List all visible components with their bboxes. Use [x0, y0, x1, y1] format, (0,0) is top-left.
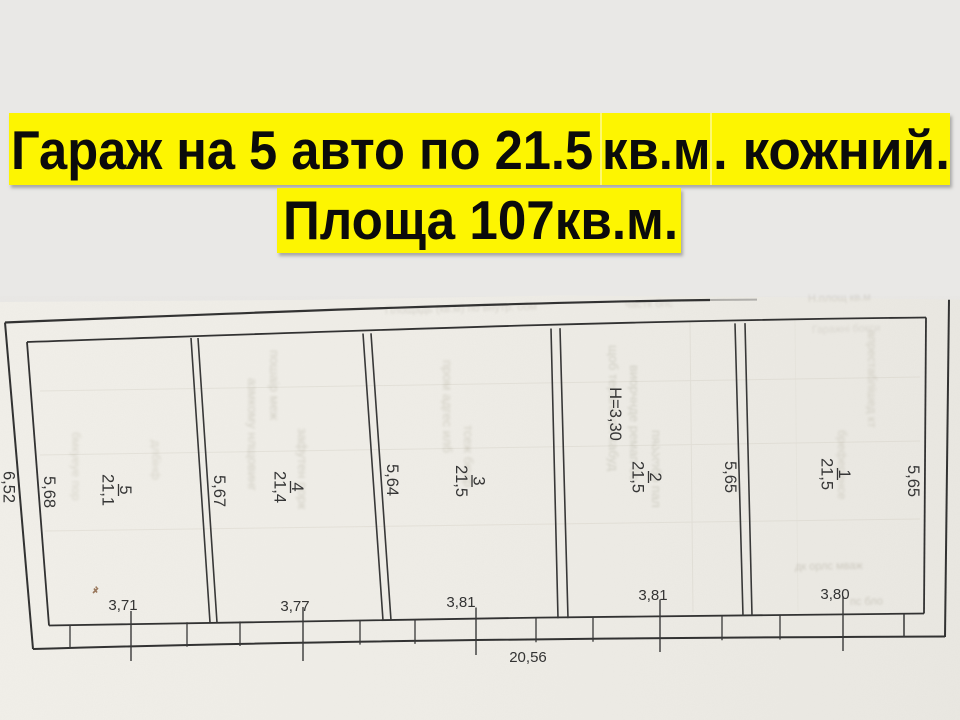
- svg-text:5,68: 5,68: [40, 476, 58, 508]
- svg-text:21,4: 21,4: [271, 471, 289, 503]
- svg-text:пошаір меж: пошаір меж: [267, 350, 282, 421]
- svg-text:3,71: 3,71: [108, 597, 137, 614]
- svg-text:3,77: 3,77: [280, 598, 309, 615]
- svg-text:апрестаблішед кт: апрестаблішед кт: [865, 330, 879, 428]
- svg-text:пс бло: пс бло: [850, 595, 883, 608]
- svg-text:5,64: 5,64: [383, 464, 401, 496]
- svg-text:Н=3,30: Н=3,30: [606, 387, 624, 441]
- svg-text:Гаражнi бокси: Гаражнi бокси: [812, 322, 881, 336]
- svg-text:20,56: 20,56: [509, 649, 547, 666]
- svg-text:пром адгес илб: пром адгес илб: [440, 360, 455, 453]
- svg-text:5,65: 5,65: [721, 461, 739, 493]
- svg-text:21,5: 21,5: [452, 465, 470, 497]
- svg-text:21,5: 21,5: [629, 461, 647, 493]
- svg-text:длбінф: длбінф: [149, 440, 163, 480]
- svg-text:дк орлс мваж: дк орлс мваж: [795, 560, 864, 573]
- svg-text:азмкому нлщовинг: азмкому нлщовинг: [245, 378, 260, 491]
- svg-text:21,1: 21,1: [99, 474, 117, 506]
- svg-text:5,67: 5,67: [210, 475, 228, 507]
- svg-text:3,81: 3,81: [638, 587, 667, 604]
- svg-text:3,81: 3,81: [446, 594, 475, 611]
- svg-text:21,5: 21,5: [818, 458, 836, 490]
- svg-text:зафутен порк: зафутен порк: [295, 428, 310, 510]
- svg-text:5,65: 5,65: [904, 465, 922, 497]
- svg-text:пяააოбо пал: пяააოбо пал: [649, 430, 664, 508]
- svg-text:бмкуеуе пор: бмкуеуе пор: [69, 432, 83, 501]
- svg-text:3,80: 3,80: [820, 586, 849, 603]
- svg-text:бреференсе: бреференсе: [835, 430, 849, 500]
- svg-text:6,52: 6,52: [0, 471, 18, 503]
- svg-text:Н.площ кв.м: Н.площ кв.м: [808, 291, 871, 305]
